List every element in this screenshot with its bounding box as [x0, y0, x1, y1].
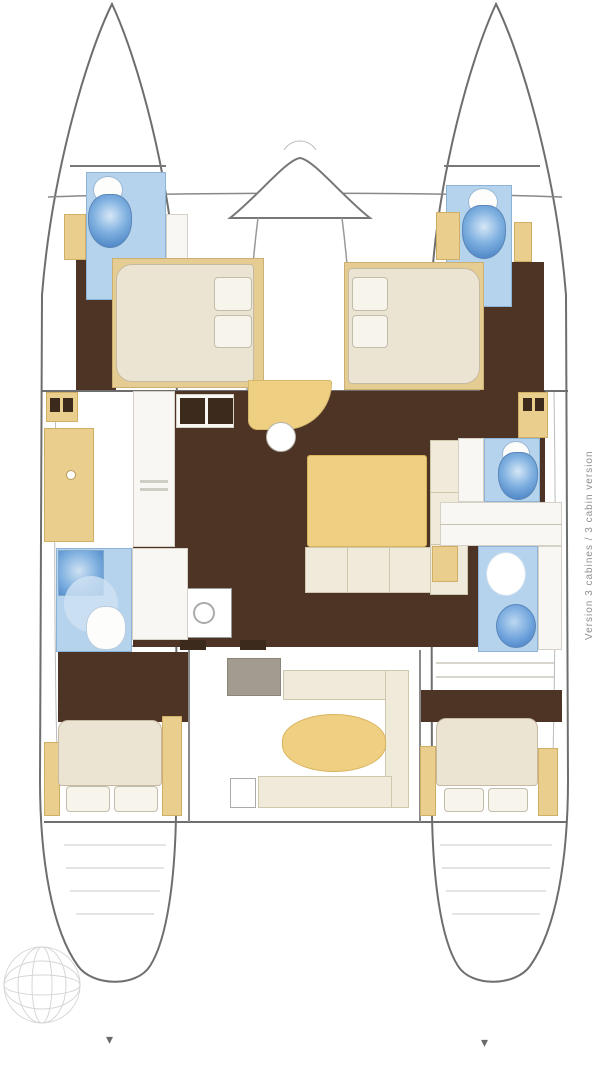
starboard-forward-toilet-icon — [462, 205, 506, 259]
cockpit-bench-bottom — [258, 776, 392, 808]
starboard-aft-pillow — [488, 788, 528, 812]
port-stern-marker-arrow-icon: ▾ — [106, 1032, 113, 1046]
starboard-forward-pillow — [352, 315, 388, 348]
bowsprit-peak — [230, 141, 370, 218]
salon-table — [307, 455, 427, 547]
wardrobe-knob-icon — [66, 470, 76, 480]
port-aft-pillow — [114, 786, 158, 812]
port-aft-bed-rail — [162, 716, 182, 816]
port-forward-toilet-icon — [88, 194, 132, 248]
starboard-stern-marker-arrow-icon: ▾ — [481, 1035, 488, 1049]
port-forward-pillow — [214, 277, 252, 311]
sofa-seam — [389, 548, 390, 592]
starboard-forward-cabinet-right — [514, 222, 532, 262]
nav-stool-icon — [193, 602, 215, 624]
cockpit-seat — [230, 778, 256, 808]
port-mid-toilet-icon — [86, 606, 126, 650]
oven-door-line — [140, 480, 168, 483]
port-aft-bed-mattress — [58, 720, 162, 786]
berth-seam — [440, 524, 562, 525]
starboard-step-line — [436, 662, 554, 664]
starboard-cabinet-slot — [535, 398, 544, 411]
version-caption: Version 3 cabines / 3 cabin version — [584, 320, 604, 640]
companionway-door-mark — [240, 640, 266, 650]
starboard-mid-toilet-icon — [498, 452, 538, 500]
starboard-aft-bed-rail — [538, 748, 558, 816]
starboard-aft-bed-mattress — [436, 718, 538, 786]
stove-burner-icon — [180, 398, 205, 424]
galley-sink-icon — [266, 422, 296, 452]
galley-cabinet-slot — [63, 398, 73, 412]
cockpit-galley-module — [227, 658, 281, 696]
cockpit-bench-top — [283, 670, 395, 700]
galley-cabinet-slot — [50, 398, 60, 412]
catamaran-floor-plan: ▾ ▾ Version 3 cabines / 3 cabin version — [0, 0, 611, 1080]
starboard-shower-cabinet — [432, 546, 458, 582]
port-wardrobe — [44, 428, 94, 542]
starboard-head-wall — [458, 438, 484, 502]
port-forward-shelf — [166, 214, 188, 260]
cockpit-table — [282, 714, 386, 772]
oven-door-line — [140, 488, 168, 491]
port-aft-cabin-floor — [58, 652, 190, 722]
starboard-aft-bed-rail — [420, 746, 436, 816]
port-vanity — [132, 548, 188, 640]
stove-burner-icon — [208, 398, 233, 424]
companionway-door-mark — [180, 640, 206, 650]
starboard-cabinet-slot — [523, 398, 532, 411]
starboard-step-line — [436, 676, 554, 678]
starboard-aft-pillow — [444, 788, 484, 812]
starboard-vanity — [538, 546, 562, 650]
starboard-sink-icon — [496, 604, 536, 648]
sofa-seam — [347, 548, 348, 592]
starboard-forward-cabinet-left — [436, 212, 460, 260]
galley-counter — [133, 391, 175, 547]
port-aft-pillow — [66, 786, 110, 812]
salon-sofa-bottom — [305, 547, 431, 593]
port-forward-pillow — [214, 315, 252, 348]
starboard-forward-pillow — [352, 277, 388, 311]
cockpit-port-wall — [188, 650, 190, 822]
port-forward-cabinet — [64, 214, 86, 260]
shower-pan-icon — [486, 552, 526, 596]
compass-rose-icon — [4, 947, 80, 1023]
